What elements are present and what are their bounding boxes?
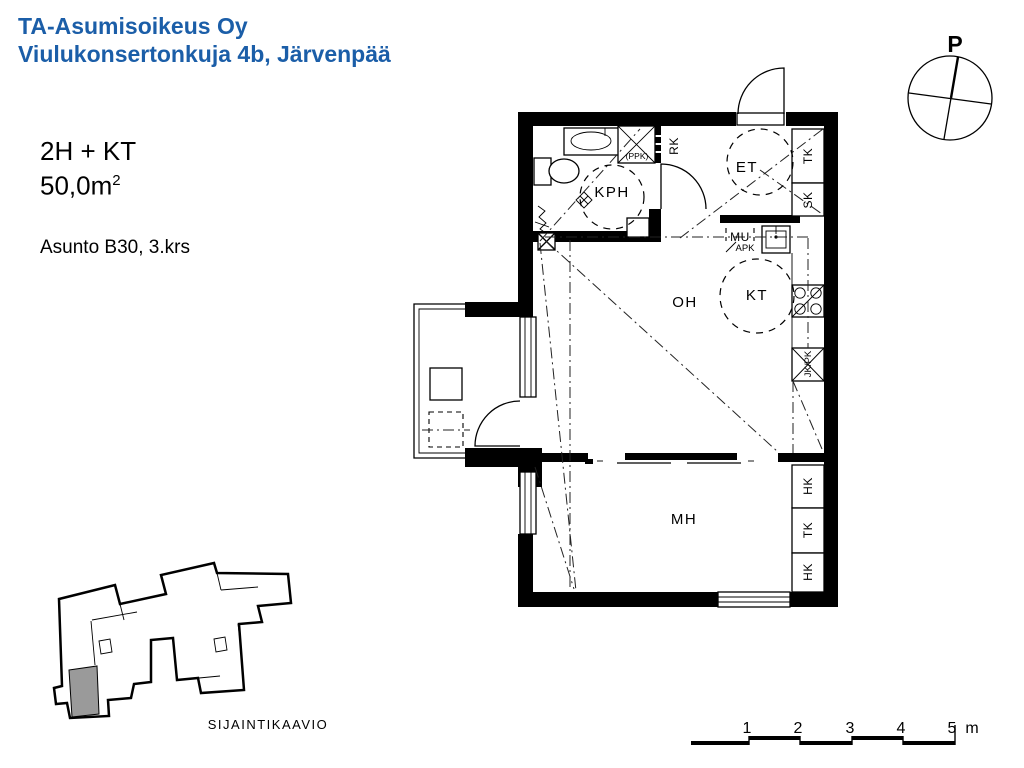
- label-bathroom: KPH: [594, 184, 629, 201]
- label-apk: APK: [735, 243, 755, 254]
- scale-bar: 1 2 3 4 5 m: [691, 720, 979, 745]
- floor-drain: [576, 192, 592, 208]
- entry-door-swing: [738, 68, 784, 114]
- compass: P: [908, 31, 992, 140]
- compass-north-needle: [951, 57, 958, 98]
- label-tk-hall: TK: [801, 148, 815, 164]
- scale-tick-3: 3: [846, 720, 855, 737]
- scale-tick-5: 5: [948, 720, 957, 737]
- label-ppk: (PPK): [626, 151, 649, 161]
- sliding-door: [597, 453, 754, 463]
- entry-door-threshold: [737, 113, 784, 125]
- bedroom-bottom-window: [718, 592, 790, 607]
- label-kitchen: KT: [746, 287, 768, 304]
- fixture-labels: RK TK SK (PPK) MU APK JK/PK HK TK HK: [626, 137, 815, 581]
- highlighted-unit: [69, 666, 99, 717]
- room-labels: KPH ET OH KT MH: [594, 159, 768, 528]
- balcony-door-swing: [475, 401, 520, 446]
- location-caption: SIJAINTIKAAVIO: [208, 717, 328, 732]
- plan-graphics: P: [0, 0, 1024, 768]
- bathroom-door-swing: [661, 164, 706, 209]
- label-sk: SK: [801, 191, 815, 208]
- toilet-bowl: [549, 159, 579, 183]
- bedroom-side-window: [520, 472, 536, 534]
- windows: [520, 113, 790, 607]
- kitchen-sink: [762, 226, 790, 253]
- floor-plan: KPH ET OH KT MH RK TK SK (PPK) MU APK JK…: [414, 68, 838, 607]
- label-hk-lower: HK: [801, 563, 815, 581]
- scale-tick-1: 1: [743, 720, 752, 737]
- scale-tick-2: 2: [794, 720, 803, 737]
- shower-symbol: [538, 206, 547, 234]
- north-label: P: [947, 31, 962, 57]
- label-bedroom: MH: [671, 511, 697, 528]
- scale-unit: m: [965, 720, 978, 737]
- label-tk-bedroom: TK: [801, 522, 815, 538]
- label-entry: ET: [736, 159, 758, 176]
- label-mu: MU: [730, 230, 750, 244]
- label-living: OH: [672, 294, 698, 311]
- floor-plan-page: { "header": { "company": "TA-Asumisoikeu…: [0, 0, 1024, 768]
- label-hk-upper: HK: [801, 477, 815, 495]
- label-rk: RK: [667, 137, 681, 155]
- balcony: [414, 304, 518, 458]
- scale-tick-4: 4: [897, 720, 906, 737]
- balcony-storage-box: [430, 368, 462, 400]
- shower-seat: [627, 218, 649, 237]
- living-room-window: [520, 317, 536, 397]
- scale-bar-segments: [691, 738, 955, 743]
- label-jk-pk: JK/PK: [803, 350, 814, 377]
- location-diagram: SIJAINTIKAAVIO: [54, 563, 328, 732]
